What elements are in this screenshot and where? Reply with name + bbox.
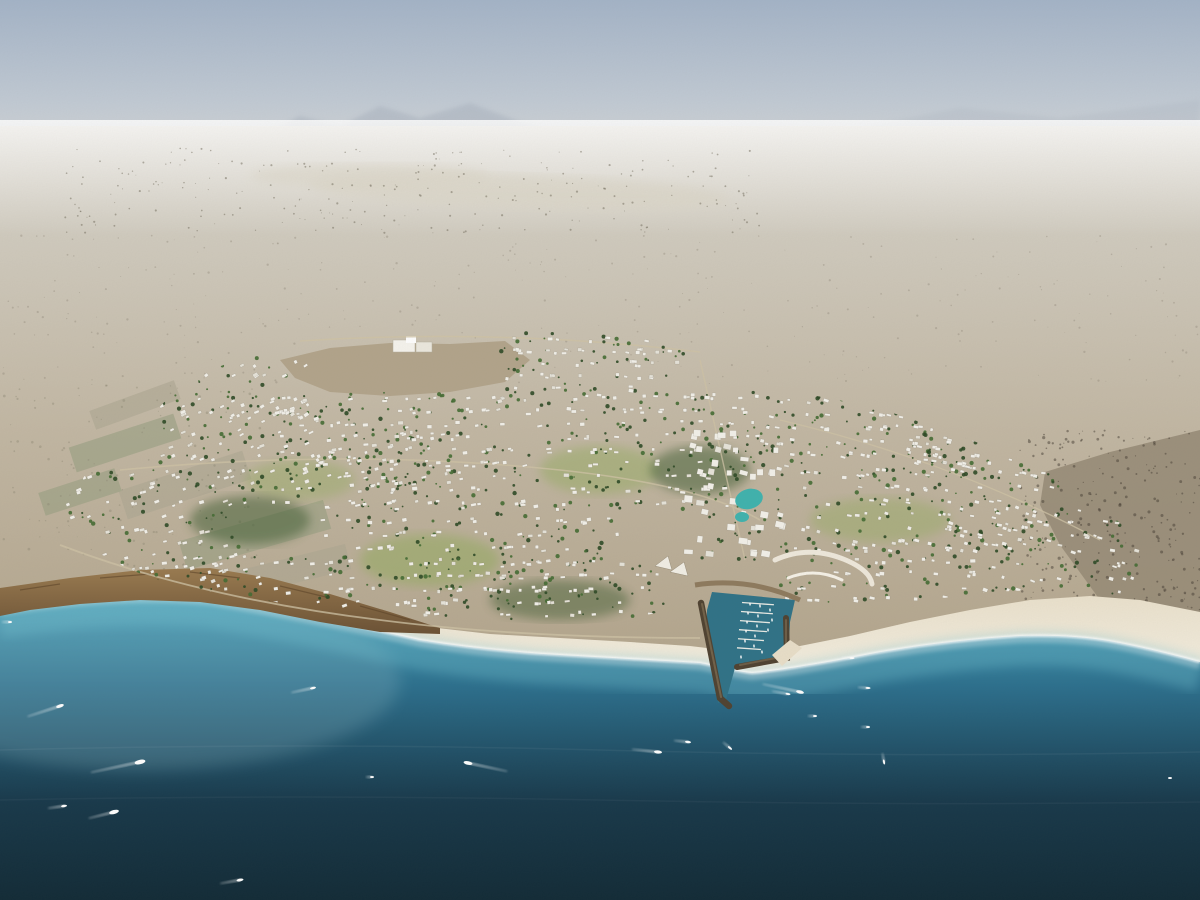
aerial-render-scene bbox=[0, 0, 1200, 900]
film-grain-overlay bbox=[0, 0, 1200, 900]
scene-svg bbox=[0, 0, 1200, 900]
